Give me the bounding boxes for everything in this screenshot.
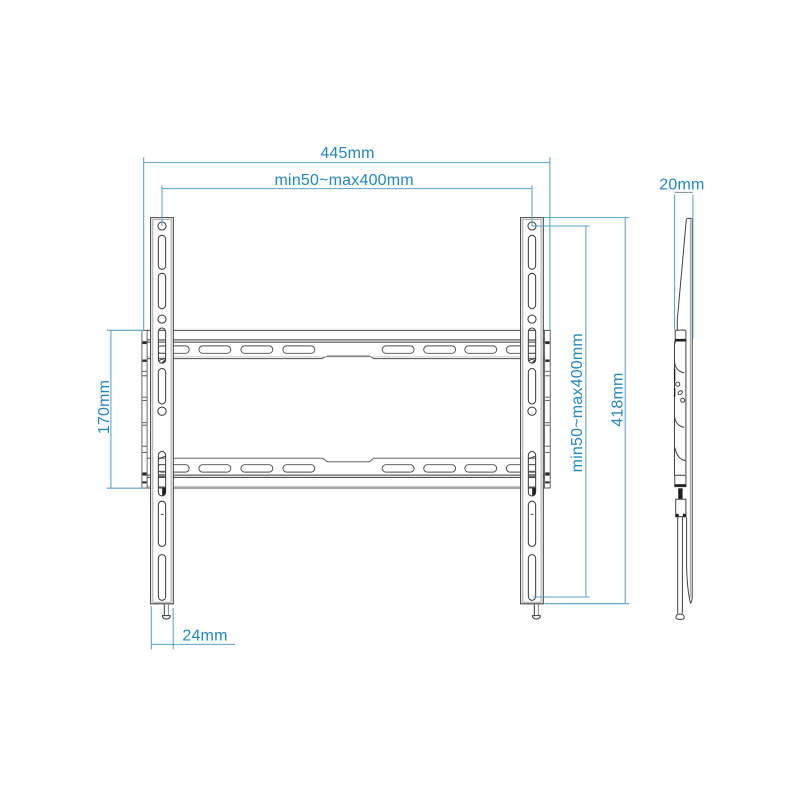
svg-text:20mm: 20mm — [659, 176, 704, 193]
svg-text:445mm: 445mm — [320, 145, 374, 162]
svg-text:418mm: 418mm — [610, 372, 627, 426]
svg-text:min50~max400mm: min50~max400mm — [569, 333, 586, 472]
svg-text:24mm: 24mm — [182, 627, 227, 644]
svg-text:min50~max400mm: min50~max400mm — [275, 172, 414, 189]
svg-text:170mm: 170mm — [96, 380, 113, 434]
